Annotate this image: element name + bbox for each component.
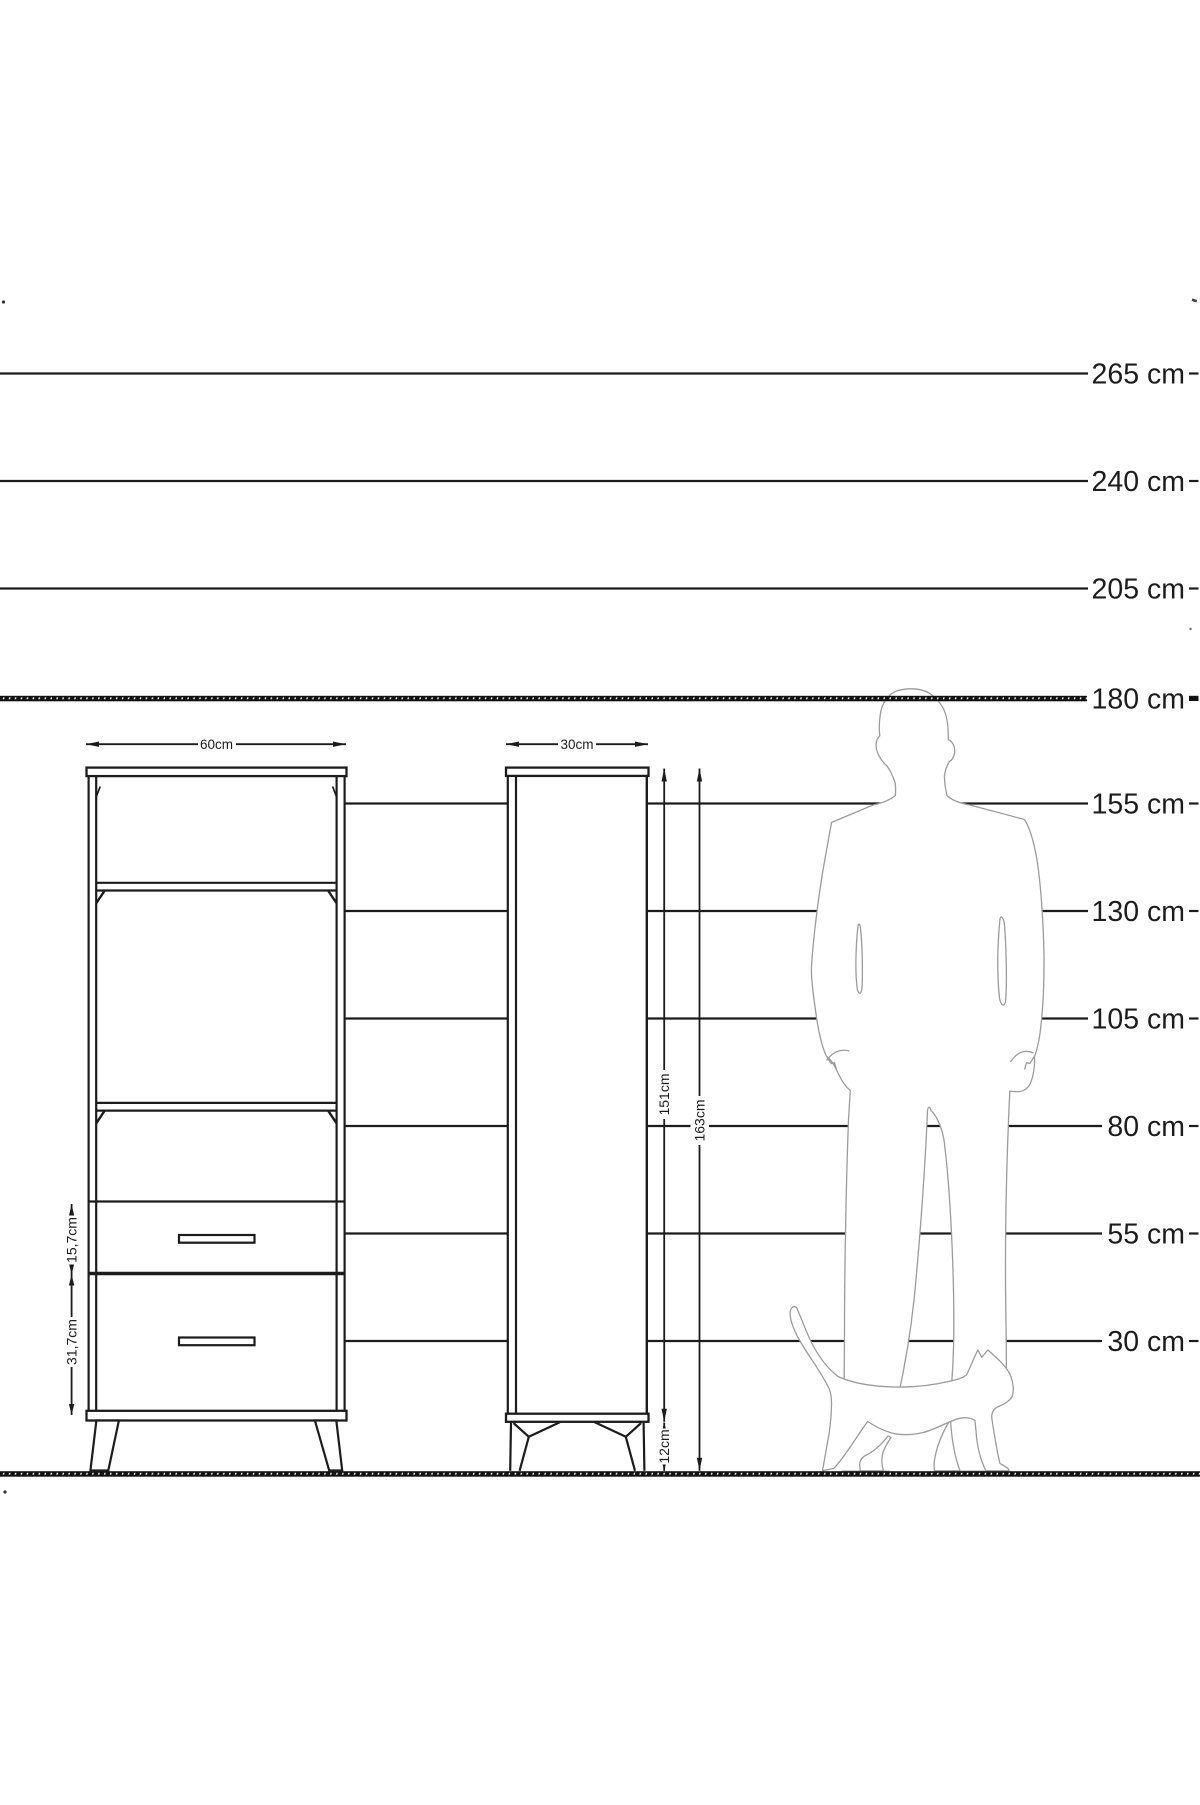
svg-text:12cm: 12cm [656,1429,672,1463]
svg-text:265 cm: 265 cm [1092,359,1185,391]
svg-text:180 cm: 180 cm [1092,684,1185,716]
svg-text:60cm: 60cm [200,737,233,752]
svg-text:130 cm: 130 cm [1092,896,1185,928]
svg-text:240 cm: 240 cm [1092,466,1185,498]
svg-text:151cm: 151cm [656,1073,672,1115]
svg-text:105 cm: 105 cm [1092,1004,1185,1036]
svg-text:155 cm: 155 cm [1092,789,1185,821]
svg-text:15,7cm: 15,7cm [64,1217,80,1263]
svg-text:205 cm: 205 cm [1092,574,1185,606]
svg-text:31,7cm: 31,7cm [64,1319,80,1365]
svg-text:30 cm: 30 cm [1107,1326,1185,1358]
svg-text:80 cm: 80 cm [1107,1111,1185,1143]
svg-text:55 cm: 55 cm [1107,1219,1185,1251]
svg-text:163cm: 163cm [692,1099,708,1141]
svg-text:30cm: 30cm [560,737,593,752]
